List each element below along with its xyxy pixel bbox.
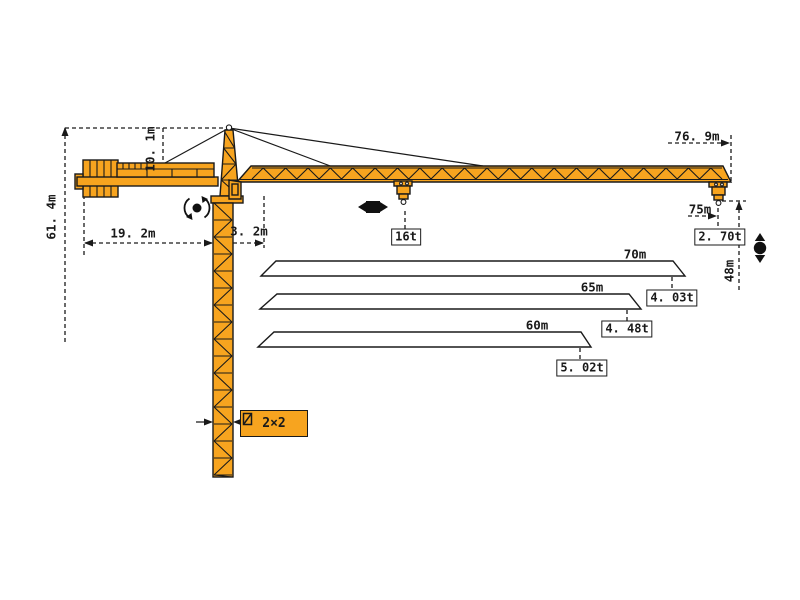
jib-bar-65m: [260, 294, 641, 309]
trolley-travel-icon: [358, 201, 388, 213]
max-load-box: 16t: [391, 229, 421, 246]
load-60m-box: 5. 02t: [556, 360, 607, 377]
head-height-label: 10. 1m: [143, 126, 158, 171]
total-height-label: 61. 4m: [44, 194, 59, 239]
min-radius-label: 3. 2m: [230, 224, 268, 239]
apex-pulley: [226, 125, 231, 130]
jib-60m-label: 60m: [526, 318, 549, 333]
jib-bar-70m: [261, 261, 685, 276]
hook-height-label: 48m: [722, 260, 737, 283]
mast-section-label: 2×2: [262, 416, 285, 431]
jib-bar-60m: [258, 332, 591, 347]
counter-jib-rail: [117, 163, 214, 177]
max-reach-label: 76. 9m: [674, 129, 719, 144]
motion-symbols: [184, 196, 766, 263]
crane-spec-diagram: 61. 4m 10. 1m 19. 2m 3. 2m 76. 9m 75m 48…: [0, 0, 800, 600]
tower-mast: [213, 203, 233, 477]
load-70m-box: 4. 03t: [646, 290, 697, 307]
mast-section-callout: 2×2: [240, 410, 308, 437]
counter-jib-label: 19. 2m: [110, 226, 155, 241]
load-65m-box: 4. 48t: [601, 321, 652, 338]
slewing-icon: [184, 196, 209, 220]
cab-window: [232, 184, 238, 195]
jib-70m-label: 70m: [624, 247, 647, 262]
mast-section-icon: [241, 411, 254, 427]
counter-jib-beam: [77, 177, 218, 186]
tie-rods: [165, 128, 483, 167]
tip-load-box: 2. 70t: [694, 229, 745, 246]
hoist-icon: [754, 233, 766, 263]
jib-65m-label: 65m: [581, 280, 604, 295]
tip-radius-label: 75m: [689, 202, 712, 217]
trolley-hook-mid: [394, 181, 412, 204]
